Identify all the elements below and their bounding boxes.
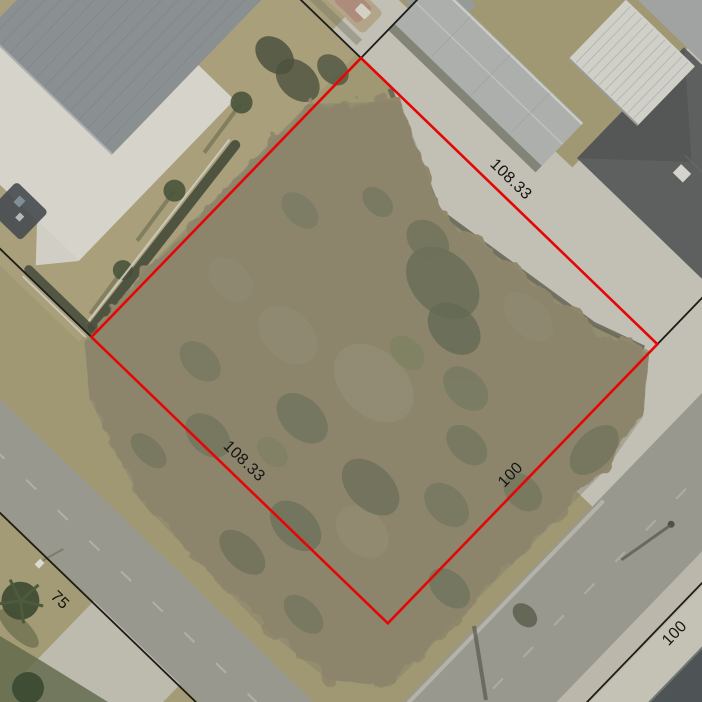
map-canvas[interactable]: 108.33 108.33 100 100 75 (0, 0, 702, 702)
parcel-map-view: 108.33 108.33 100 100 75 (0, 0, 702, 702)
